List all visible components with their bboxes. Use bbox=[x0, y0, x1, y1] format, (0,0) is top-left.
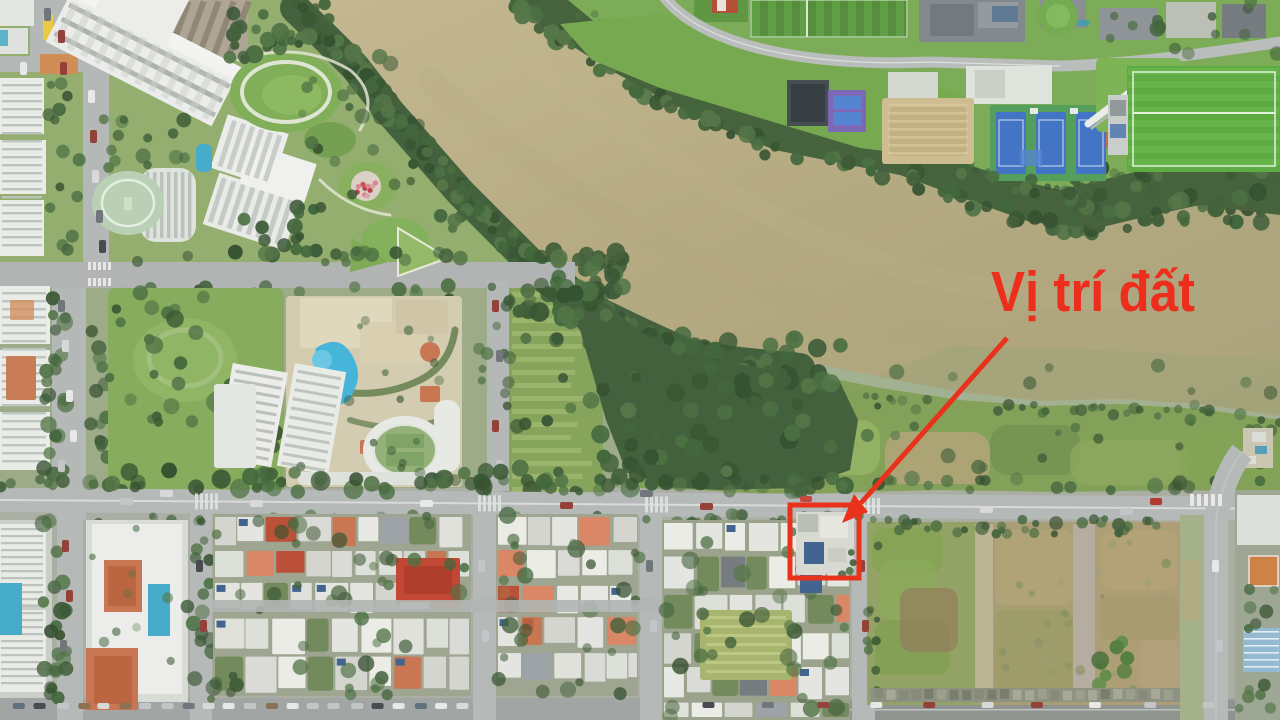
svg-text:Vị trí đất: Vị trí đất bbox=[991, 260, 1195, 324]
